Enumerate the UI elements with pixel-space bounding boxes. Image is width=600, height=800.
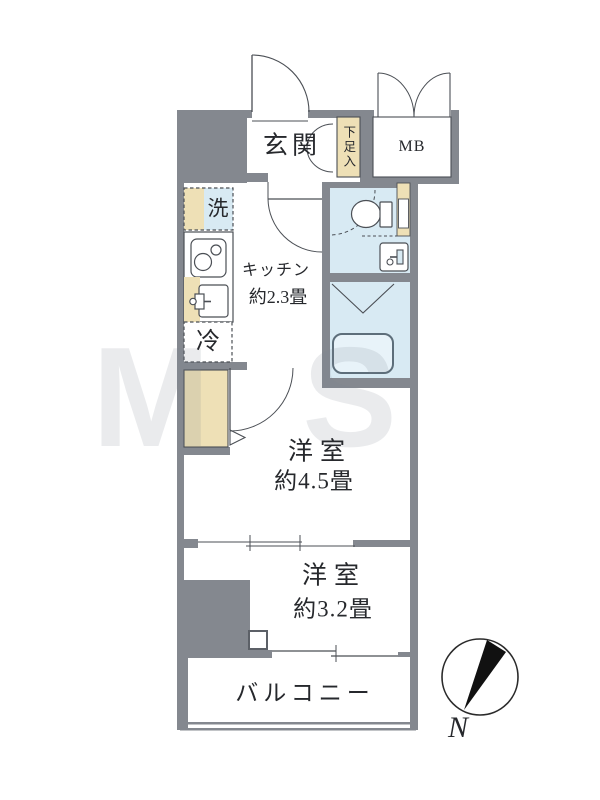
meter-box-label: MB xyxy=(399,139,426,155)
room2-label: 洋室 xyxy=(302,564,366,589)
wall-segment xyxy=(247,110,252,118)
room1-size-label: 約4.5畳 xyxy=(274,470,354,493)
shoe-cabinet-label: 下足入 xyxy=(342,125,355,169)
toilet-icon xyxy=(352,201,381,228)
compass-north-label: N xyxy=(448,713,468,743)
wall-segment xyxy=(184,539,198,548)
entrance-label: 玄関 xyxy=(263,134,321,159)
mb-door-arc xyxy=(414,73,450,117)
hall-door-arc xyxy=(268,199,322,252)
room-door-arc xyxy=(230,368,293,431)
wall-segment xyxy=(177,362,247,370)
closet xyxy=(184,370,228,447)
wall-segment xyxy=(330,273,410,282)
pillar xyxy=(249,631,267,649)
wall-segment xyxy=(177,650,188,730)
entry-door-arc xyxy=(252,55,309,112)
wall-segment xyxy=(244,173,268,182)
wall-segment xyxy=(177,110,247,183)
faucet-knob-icon xyxy=(190,298,196,304)
wall-segment xyxy=(410,182,418,730)
wall-segment xyxy=(398,652,410,657)
fridge-label: 冷 xyxy=(196,330,220,354)
washbasin-faucet-icon xyxy=(397,250,403,264)
balcony-rail-line xyxy=(180,728,416,731)
washer-pan-left xyxy=(184,188,204,230)
balcony-label: バルコニー xyxy=(235,682,375,705)
wall-segment xyxy=(451,110,459,183)
washer-label: 洗 xyxy=(208,199,229,220)
bathtub-icon xyxy=(333,334,393,373)
toilet-tank-icon xyxy=(380,202,392,227)
wall-segment xyxy=(177,183,184,658)
floor-plan: MS 玄関 下足入 MB 洗 キッチン 約2.3畳 冷 洋室 約4.5畳 洋室 … xyxy=(0,0,600,800)
room2-size-label: 約3.2畳 xyxy=(293,598,373,621)
toilet-shelf-inner xyxy=(399,199,409,228)
kitchen-size-label: 約2.3畳 xyxy=(249,288,308,306)
room-door-tip xyxy=(230,430,245,445)
structural-column xyxy=(184,580,250,657)
room1-label: 洋室 xyxy=(288,440,352,465)
wall-segment xyxy=(177,650,272,658)
wall-segment xyxy=(322,182,330,380)
wall-segment xyxy=(177,447,230,455)
stove-icon xyxy=(191,239,226,277)
balcony-rail-line xyxy=(180,722,416,725)
wall-segment xyxy=(360,117,373,177)
wall-segment xyxy=(322,378,410,388)
mb-door-arc xyxy=(378,73,414,117)
wall-segment xyxy=(353,540,410,547)
kitchen-label: キッチン xyxy=(242,263,310,279)
